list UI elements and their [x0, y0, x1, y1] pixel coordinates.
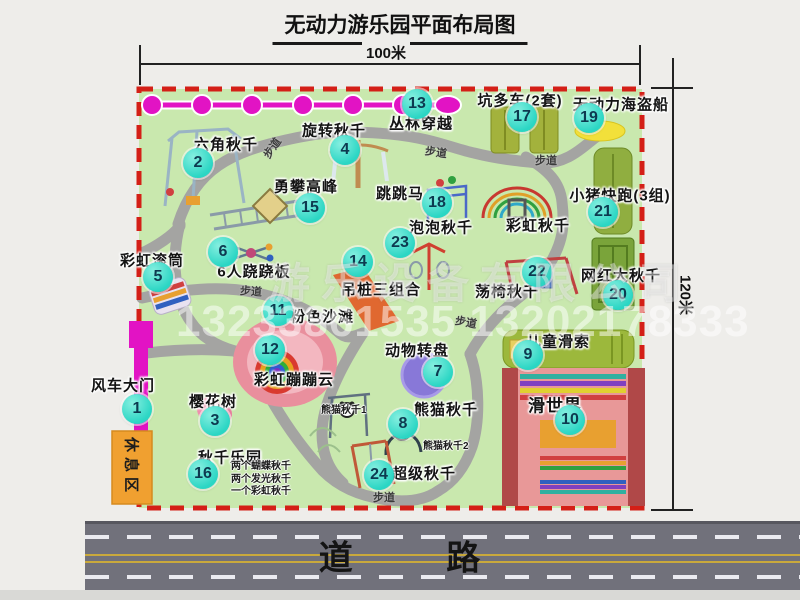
sub-label-0: 熊猫秋千1 — [321, 405, 367, 418]
attraction-label-24: 超级秋千 — [392, 463, 456, 484]
rest-area-label: 休息区 — [122, 437, 143, 497]
attraction-label-12: 彩虹蹦蹦云 — [254, 369, 334, 390]
road: 道 路 — [85, 521, 800, 593]
attraction-label-4: 旋转秋千 — [302, 120, 366, 141]
attraction-badge-2: 2 — [183, 148, 213, 178]
walkway-label-0: 步道 — [259, 134, 285, 161]
attraction-badge-6: 6 — [208, 237, 238, 267]
attraction-badge-18: 18 — [422, 188, 452, 218]
attraction-badge-17: 17 — [507, 102, 537, 132]
attraction-badge-24: 24 — [364, 460, 394, 490]
sub-label-1: 熊猫秋千2 — [423, 441, 469, 454]
park-plan-screenshot: 无动力游乐园平面布局图 100米 120米 — [0, 0, 800, 600]
attraction-badge-23: 23 — [385, 228, 415, 258]
attraction-badge-16: 16 — [188, 459, 218, 489]
walkway-label-4: 步道 — [454, 312, 478, 332]
attraction-label-8: 熊猫秋千 — [414, 399, 478, 420]
walkway-label-5: 步道 — [373, 489, 395, 505]
attraction-badge-21: 21 — [588, 197, 618, 227]
attraction-badge-11: 11 — [263, 296, 293, 326]
road-label: 道 路 — [277, 531, 522, 580]
walkway-label-2: 步道 — [535, 152, 557, 168]
attraction-badge-7: 7 — [423, 357, 453, 387]
attraction-label-11: 粉色沙滩 — [290, 306, 354, 327]
attraction-badge-9: 9 — [513, 340, 543, 370]
attraction-badge-8: 8 — [388, 409, 418, 439]
attraction-badge-14: 14 — [343, 247, 373, 277]
attraction-badge-20: 20 — [603, 280, 633, 310]
attraction-label-18: 跳跳马 — [376, 183, 424, 204]
attraction-badge-12: 12 — [255, 335, 285, 365]
attraction-label-21: 小猪快跑(3组) — [569, 185, 670, 206]
attraction-badge-3: 3 — [200, 406, 230, 436]
map-label-layer: 风车大门1六角秋千2樱花树3旋转秋千4彩虹滚筒56人跷跷板6动物转盘7熊猫秋千8… — [0, 0, 800, 600]
attraction-label-1: 风车大门 — [91, 375, 155, 396]
attraction-label-23: 泡泡秋千 — [409, 217, 473, 238]
walkway-label-1: 步道 — [424, 143, 448, 162]
attraction-label-14: 吊桩三组合 — [341, 279, 421, 300]
attraction-badge-4: 4 — [330, 135, 360, 165]
attraction-badge-10: 10 — [555, 405, 585, 435]
attraction-badge-13: 13 — [402, 89, 432, 119]
attraction-badge-1: 1 — [122, 394, 152, 424]
walkway-label-3: 步道 — [239, 282, 262, 299]
attraction-badge-5: 5 — [143, 262, 173, 292]
attraction-label-x24: 彩虹秋千 — [506, 215, 570, 236]
attraction-notes-16: 两个蝴蝶秋千两个发光秋千一个彩虹秋千 — [231, 461, 291, 499]
attraction-badge-22: 22 — [522, 257, 552, 287]
attraction-badge-19: 19 — [574, 103, 604, 133]
attraction-note-line: 一个彩虹秋千 — [231, 486, 291, 499]
attraction-badge-15: 15 — [295, 193, 325, 223]
attraction-note-line: 两个发光秋千 — [231, 474, 291, 487]
road-shoulder — [0, 590, 800, 600]
attraction-note-line: 两个蝴蝶秋千 — [231, 461, 291, 474]
